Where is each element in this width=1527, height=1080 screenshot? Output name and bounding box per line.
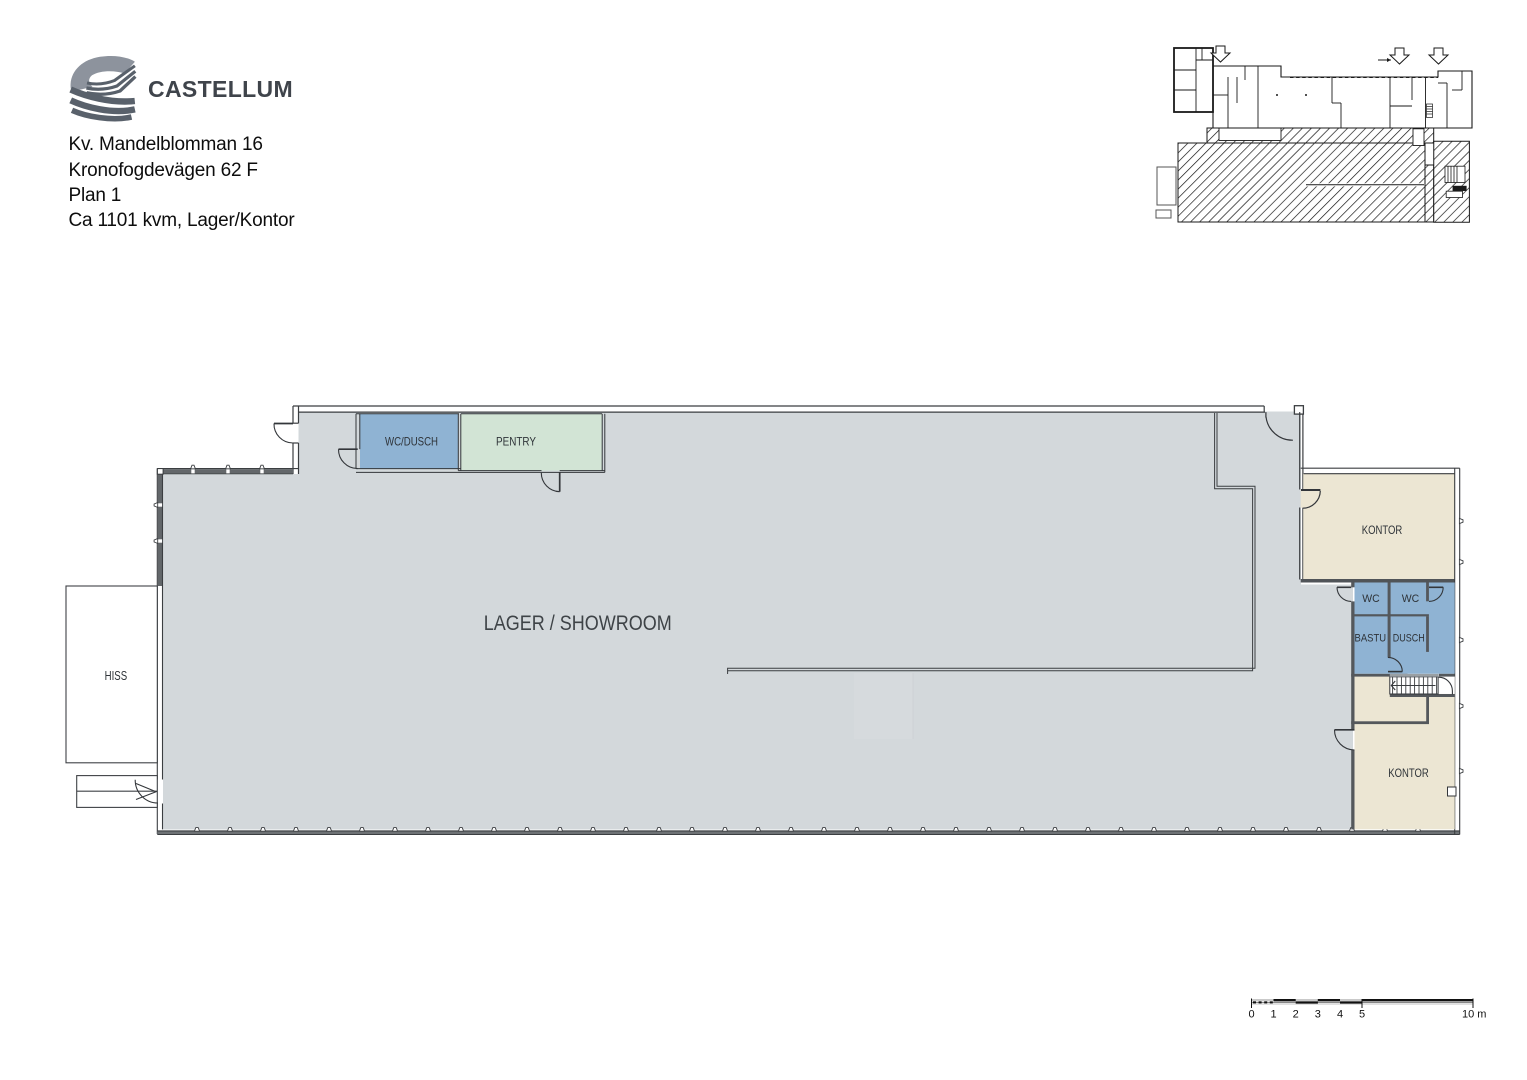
svg-text:WC: WC xyxy=(1402,593,1420,605)
svg-text:4: 4 xyxy=(1337,1009,1343,1021)
svg-text:DUSCH: DUSCH xyxy=(1393,632,1425,644)
svg-text:WC: WC xyxy=(1362,593,1380,605)
svg-text:WC/DUSCH: WC/DUSCH xyxy=(385,434,438,448)
svg-text:0: 0 xyxy=(1248,1009,1254,1021)
svg-text:10 m: 10 m xyxy=(1462,1009,1486,1021)
svg-text:KONTOR: KONTOR xyxy=(1388,767,1429,780)
svg-text:1: 1 xyxy=(1270,1009,1276,1021)
svg-text:KONTOR: KONTOR xyxy=(1362,524,1403,537)
svg-text:3: 3 xyxy=(1315,1009,1321,1021)
svg-text:BASTU: BASTU xyxy=(1355,632,1387,644)
svg-text:LAGER / SHOWROOM: LAGER / SHOWROOM xyxy=(484,612,672,635)
svg-text:5: 5 xyxy=(1359,1009,1365,1021)
svg-text:HISS: HISS xyxy=(105,668,128,683)
svg-text:2: 2 xyxy=(1293,1009,1299,1021)
svg-text:PENTRY: PENTRY xyxy=(496,434,536,448)
